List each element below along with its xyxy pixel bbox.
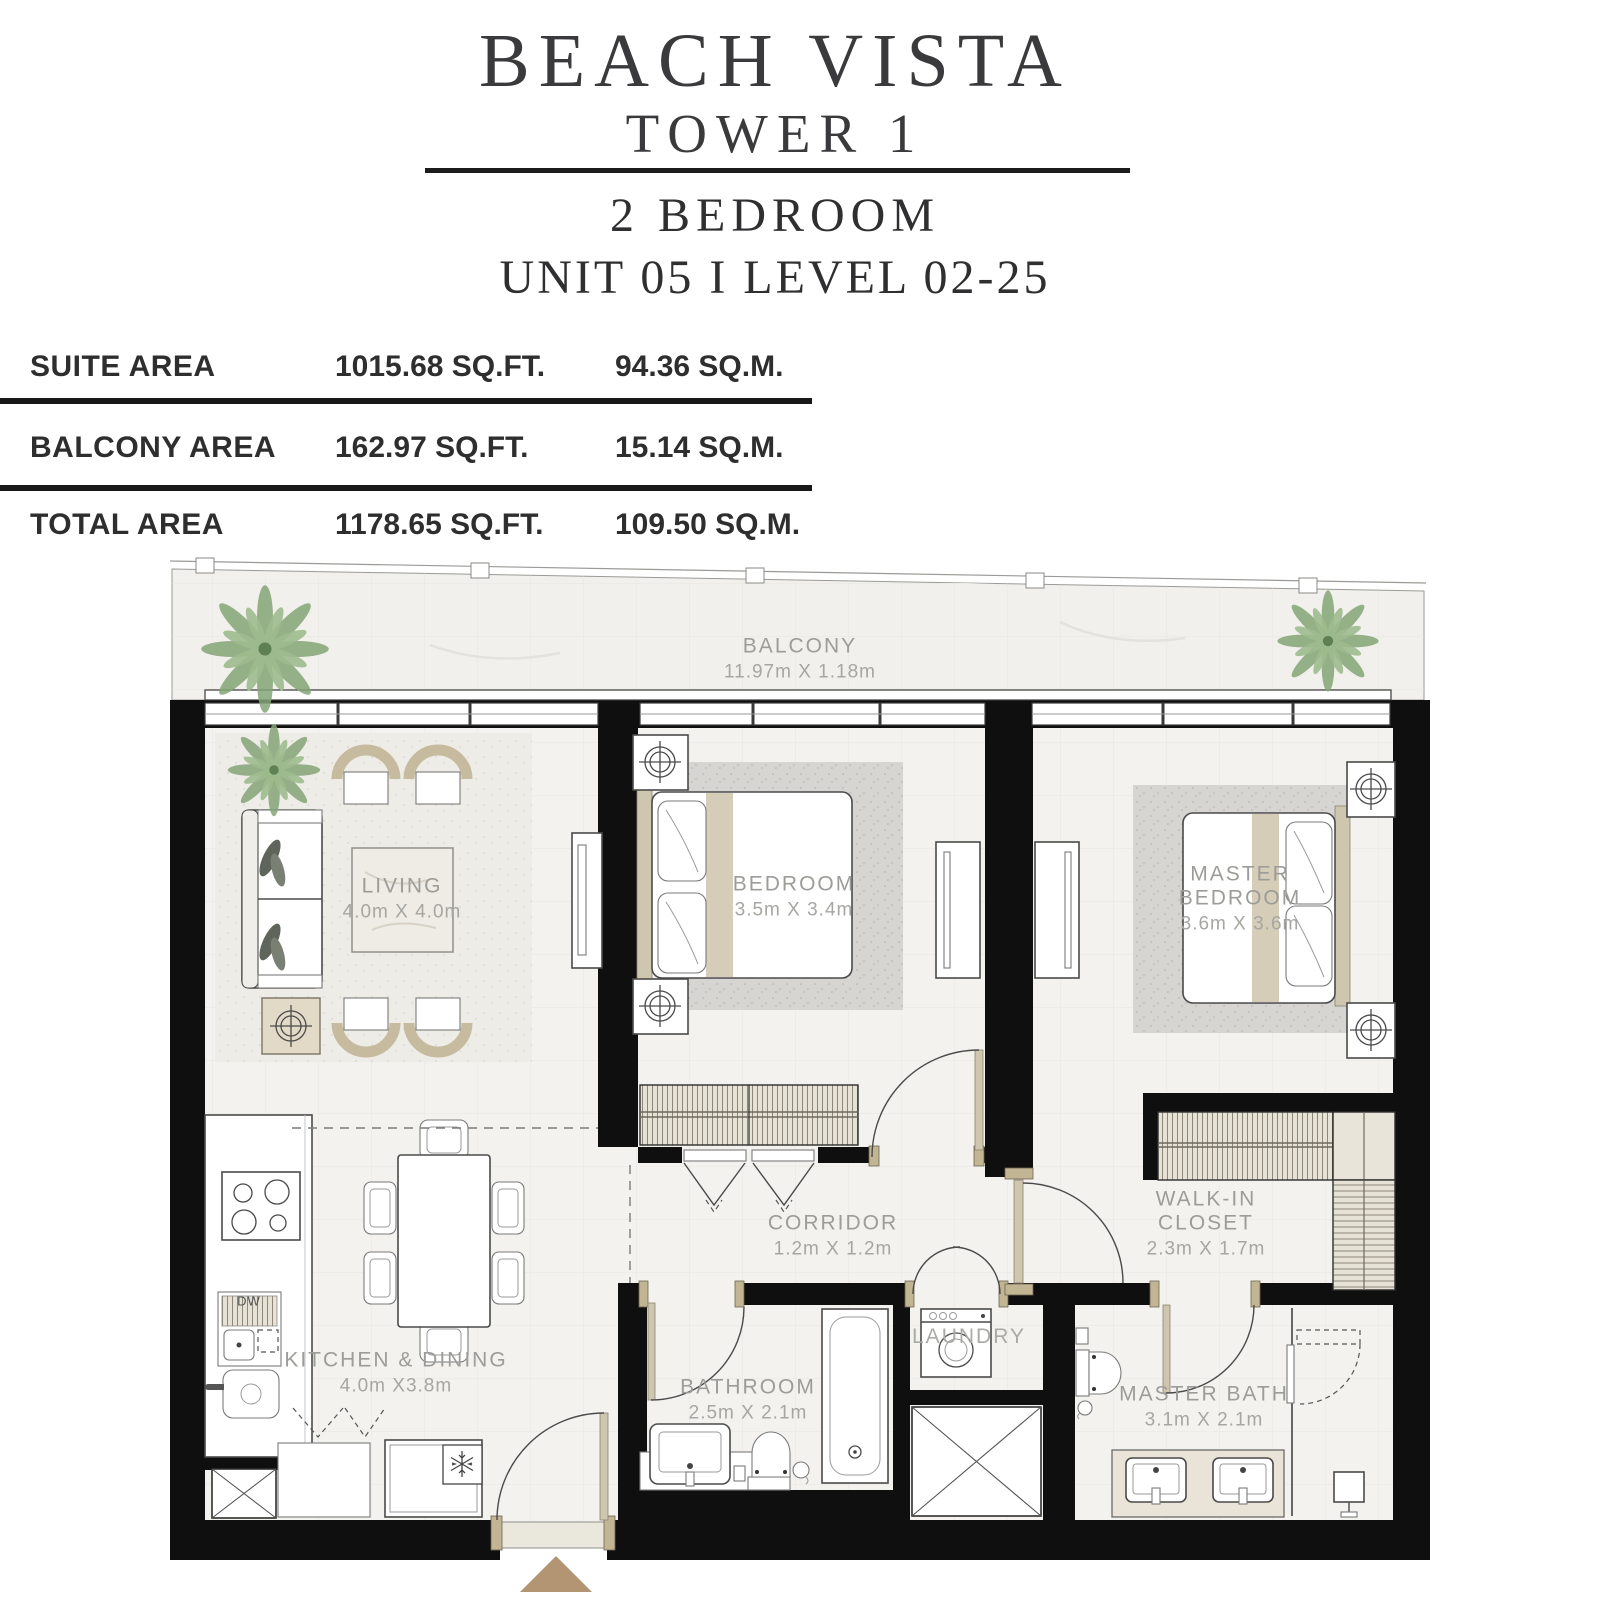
corridor-label: CORRIDOR 1.2m X 1.2m <box>768 1212 898 1261</box>
dishwasher-label: DW <box>237 1294 261 1309</box>
title-divider <box>425 168 1130 173</box>
unit-level-line: UNIT 05 I LEVEL 02-25 <box>115 250 1435 305</box>
suite-area-label: SUITE AREA <box>30 346 216 388</box>
total-area-sqm: 109.50 SQ.M. <box>615 504 800 546</box>
balcony-label: BALCONY 11.97m X 1.18m <box>724 635 876 684</box>
table-divider <box>0 485 812 491</box>
walk-in-closet-label: WALK-IN CLOSET 2.3m X 1.7m <box>1146 1187 1266 1260</box>
balcony-area-sqft: 162.97 SQ.FT. <box>335 427 528 469</box>
table-row: TOTAL AREA 1178.65 SQ.FT. 109.50 SQ.M. <box>0 504 820 546</box>
floorplan-page: BEACH VISTA TOWER 1 2 BEDROOM UNIT 05 I … <box>0 0 1600 1600</box>
entry-arrow <box>520 1556 592 1592</box>
bedroom-label: BEDROOM 3.5m X 3.4m <box>733 873 856 922</box>
unit-type: 2 BEDROOM <box>115 188 1435 243</box>
living-label: LIVING 4.0m X 4.0m <box>343 875 462 924</box>
table-divider <box>0 398 812 404</box>
balcony-area-label: BALCONY AREA <box>30 427 276 469</box>
master-bath-label: MASTER BATH 3.1m X 2.1m <box>1119 1383 1289 1432</box>
total-area-sqft: 1178.65 SQ.FT. <box>335 504 543 546</box>
master-bedroom-label: MASTER BEDROOM 3.6m X 3.6m <box>1165 862 1315 935</box>
total-area-label: TOTAL AREA <box>30 504 224 546</box>
balcony-windows <box>205 690 1391 725</box>
suite-area-sqft: 1015.68 SQ.FT. <box>335 346 545 388</box>
tower-title: TOWER 1 <box>115 102 1435 165</box>
table-row: BALCONY AREA 162.97 SQ.FT. 15.14 SQ.M. <box>0 427 820 469</box>
kitchen-dining-label: KITCHEN & DINING 4.0m X3.8m <box>284 1349 507 1398</box>
laundry-label: LAUNDRY <box>912 1325 1026 1349</box>
suite-area-sqm: 94.36 SQ.M. <box>615 346 783 388</box>
table-row: SUITE AREA 1015.68 SQ.FT. 94.36 SQ.M. <box>0 346 820 388</box>
bathroom-label: BATHROOM 2.5m X 2.1m <box>680 1376 816 1425</box>
project-title: BEACH VISTA <box>115 18 1435 105</box>
title-block: BEACH VISTA TOWER 1 2 BEDROOM UNIT 05 I … <box>115 0 1435 330</box>
balcony-area-sqm: 15.14 SQ.M. <box>615 427 783 469</box>
